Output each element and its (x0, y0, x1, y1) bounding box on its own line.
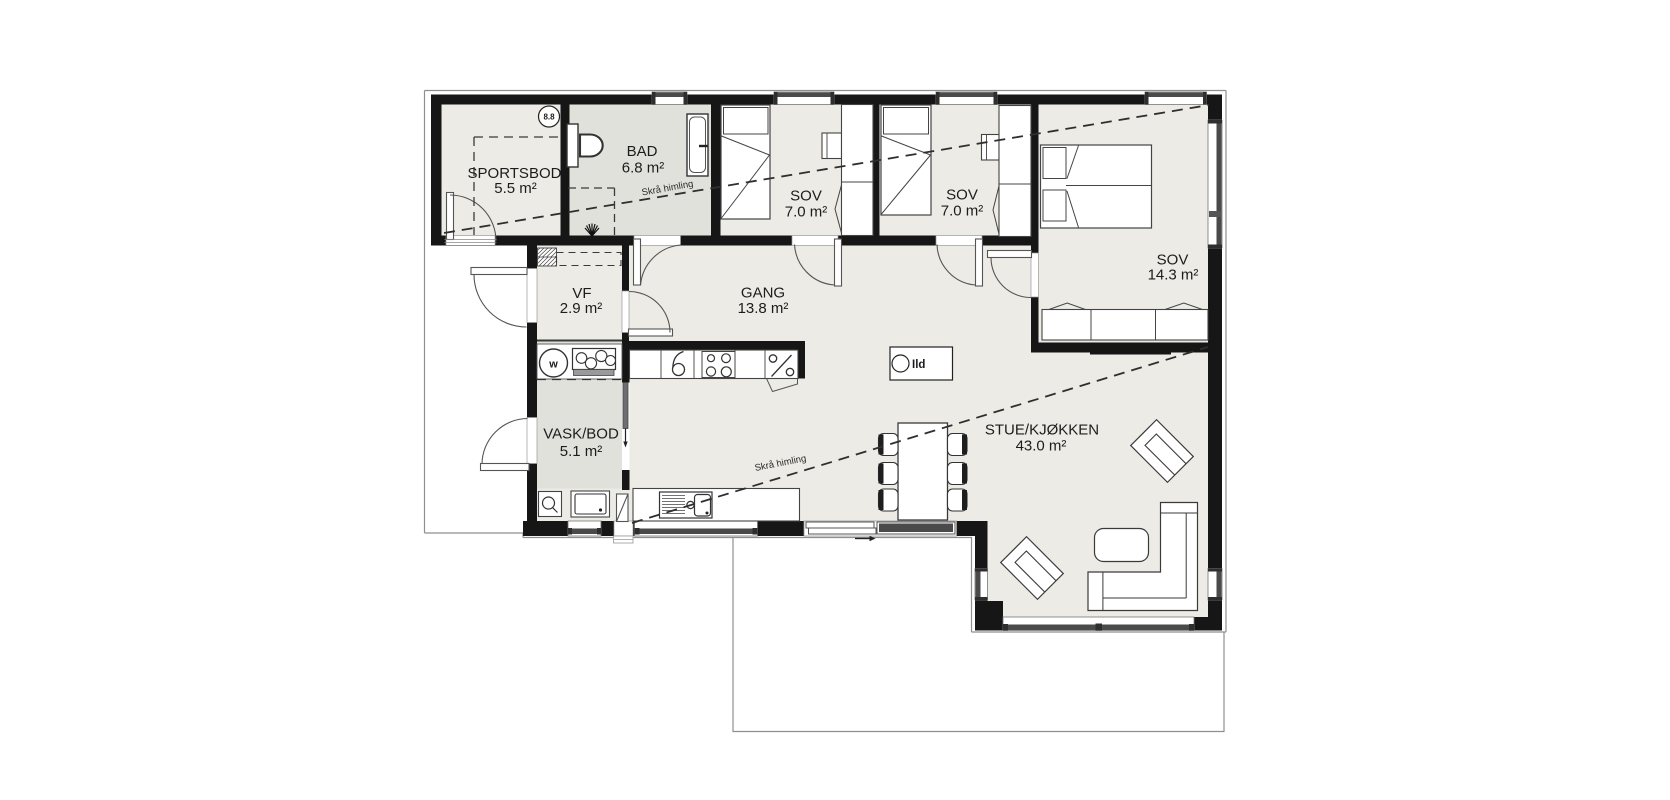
svg-text:7.0 m²: 7.0 m² (941, 203, 984, 220)
svg-text:13.8 m²: 13.8 m² (738, 300, 789, 317)
svg-text:43.0 m²: 43.0 m² (1016, 438, 1067, 455)
svg-text:VASK/BOD: VASK/BOD (543, 426, 619, 443)
svg-text:5.5 m²: 5.5 m² (494, 180, 537, 197)
svg-text:2.9 m²: 2.9 m² (560, 300, 603, 317)
svg-text:7.0 m²: 7.0 m² (785, 204, 828, 221)
svg-text:Ild: Ild (912, 359, 925, 371)
svg-text:5.1 m²: 5.1 m² (560, 443, 603, 460)
svg-text:GANG: GANG (741, 285, 785, 302)
svg-text:BAD: BAD (627, 143, 658, 160)
svg-text:STUE/KJØKKEN: STUE/KJØKKEN (985, 422, 1099, 439)
svg-text:w: w (548, 359, 558, 371)
svg-text:6.8 m²: 6.8 m² (622, 160, 665, 177)
svg-text:8.8: 8.8 (543, 113, 555, 122)
svg-text:14.3 m²: 14.3 m² (1148, 267, 1199, 284)
svg-text:SOV: SOV (946, 187, 978, 204)
svg-text:SOV: SOV (790, 188, 822, 205)
